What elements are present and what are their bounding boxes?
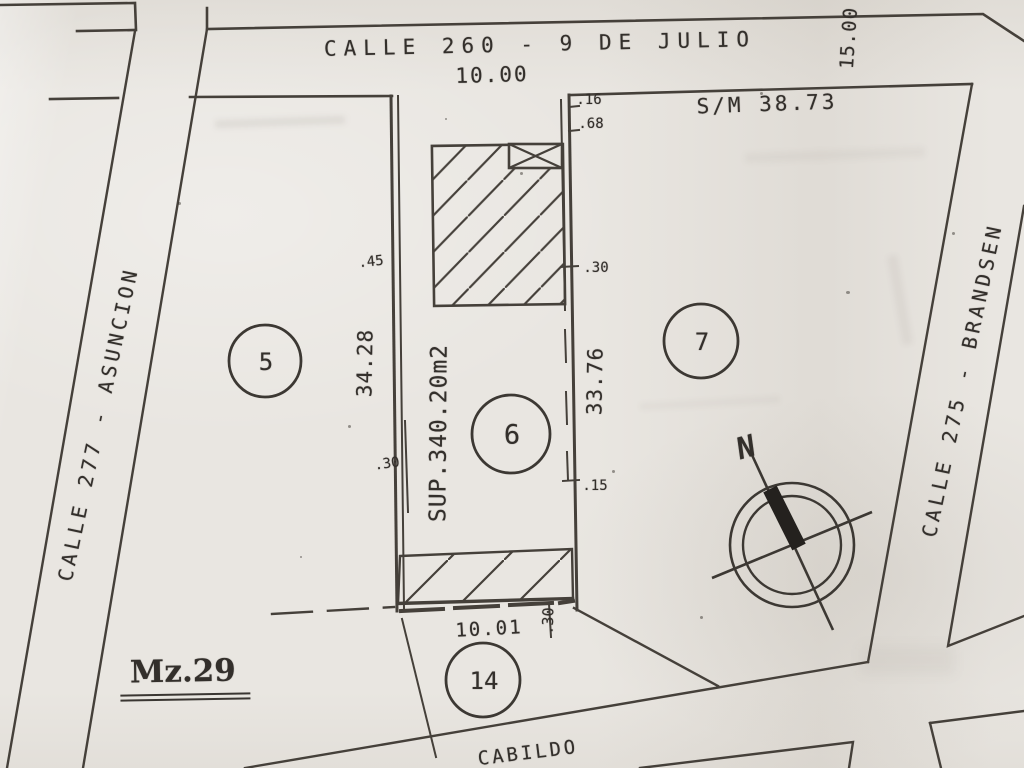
corner-distance-dimension: 15.00 (836, 6, 862, 70)
plan-linework (0, 0, 1024, 768)
north-compass (712, 455, 872, 630)
offset-right-lower: .15 (582, 478, 607, 494)
building-hatched (432, 144, 565, 306)
lot-rear-dimension: 10.01 (455, 616, 523, 641)
parcel-5-number: 5 (259, 348, 273, 376)
parcel-7-number: 7 (695, 328, 709, 356)
offset-right-upper: .30 (583, 260, 608, 276)
lot-left-depth-dimension: 34.28 (352, 329, 377, 398)
parcel-14-number: 14 (470, 667, 499, 695)
lot-number: 6 (504, 420, 520, 451)
offset-left-upper: .45 (358, 253, 385, 272)
lot-area-label: SUP.340.20m2 (425, 344, 453, 522)
survey-note: S/M 38.73 (696, 90, 838, 119)
building-cross-box (509, 144, 562, 168)
lot-right-depth-dimension: 33.76 (582, 347, 607, 416)
offset-top-right-a: .16 (576, 92, 601, 108)
rear-hatched-strip (398, 549, 573, 604)
offset-top-right-b: .68 (578, 116, 603, 132)
rear-offset-dimension: .30 (539, 607, 558, 635)
lot-front-dimension: 10.00 (455, 62, 529, 88)
scanned-plan-page: CALLE 260 - 9 DE JULIO 10.00 S/M 38.73 1… (0, 0, 1024, 768)
block-label: Mz.29 (120, 652, 251, 701)
